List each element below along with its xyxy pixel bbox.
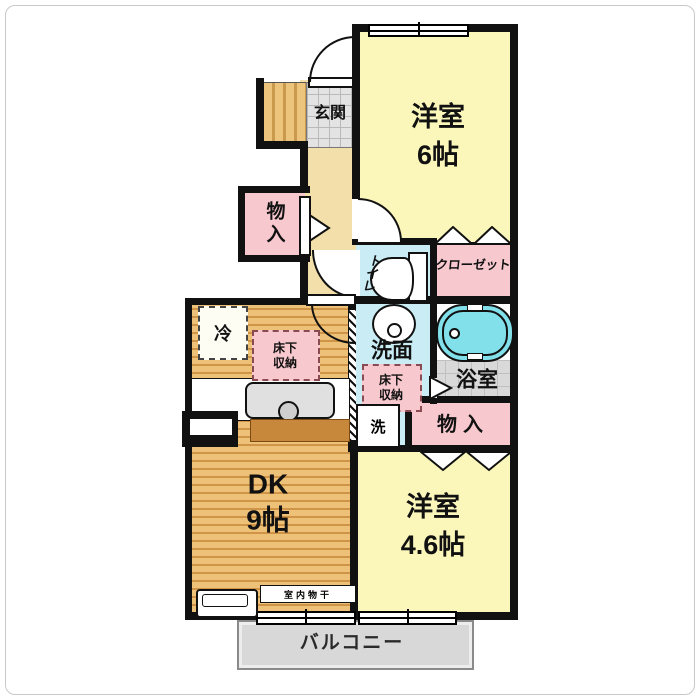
window-western46-balcony (358, 611, 457, 625)
closet-folding-door-icon (434, 226, 512, 245)
wall-storage-top-bottom (238, 255, 310, 262)
wall-dk-top (185, 298, 310, 305)
dk-name: DK (246, 467, 290, 503)
refrigerator-space: 冷 (198, 306, 248, 360)
storage-bottom-label: 物入 (437, 414, 489, 436)
washing-machine-label: 洗 (370, 416, 385, 437)
kitchen-cabinet (250, 419, 350, 442)
bathroom-door-icon (429, 376, 453, 400)
western46-size: 4.6帖 (401, 527, 466, 565)
window-western6 (368, 24, 469, 37)
bathtub-icon (436, 304, 514, 362)
entrance-label: 玄関 (314, 105, 346, 123)
entrance-porch-floor (263, 82, 308, 148)
storage-top-label: 物入 (263, 201, 284, 247)
western6-size: 6帖 (411, 137, 465, 175)
indoor-drying-label-box: 室内物干 (260, 585, 356, 603)
wall-storage-top-left (238, 186, 245, 262)
bathroom-label: 浴室 (456, 368, 498, 391)
storage-bottom-folding-door-icon (420, 451, 512, 472)
window-dk-balcony (256, 611, 356, 625)
dk-size: 9帖 (246, 503, 290, 539)
washing-machine-space: 洗 (356, 404, 400, 448)
storage-top-door-panel (299, 196, 311, 256)
western6-name: 洋室 (411, 99, 465, 137)
wall-porch-left (256, 78, 264, 149)
washbasin-icon (372, 304, 416, 344)
western6-label: 洋室 6帖 (411, 99, 465, 175)
dk-label: DK 9帖 (246, 467, 290, 540)
underfloor-storage-dk: 床下収納 (252, 330, 320, 381)
western46-name: 洋室 (401, 489, 466, 527)
floor-plan: 冷 床下収納 床下収納 洗 室内物干 玄関 洋室 6帖 物入 トイレ クローゼッ… (0, 0, 700, 700)
western46-label: 洋室 4.6帖 (401, 489, 466, 565)
kitchen-wall-slot (190, 419, 232, 435)
balcony-label: バルコニー (300, 634, 405, 655)
underfloor-storage-wash-label: 床下収納 (379, 373, 405, 403)
washroom-label: 洗面 (371, 339, 413, 362)
dk-corner-unit (196, 589, 258, 618)
underfloor-storage-dk-label: 床下収納 (273, 341, 299, 371)
refrigerator-label: 冷 (214, 320, 232, 346)
closet-label: クローゼット (435, 259, 511, 273)
wall-porch-bottom (256, 141, 308, 149)
indoor-drying-label: 室内物干 (284, 588, 332, 601)
wall-storage-top-top (238, 186, 310, 193)
wall-left (185, 298, 192, 620)
